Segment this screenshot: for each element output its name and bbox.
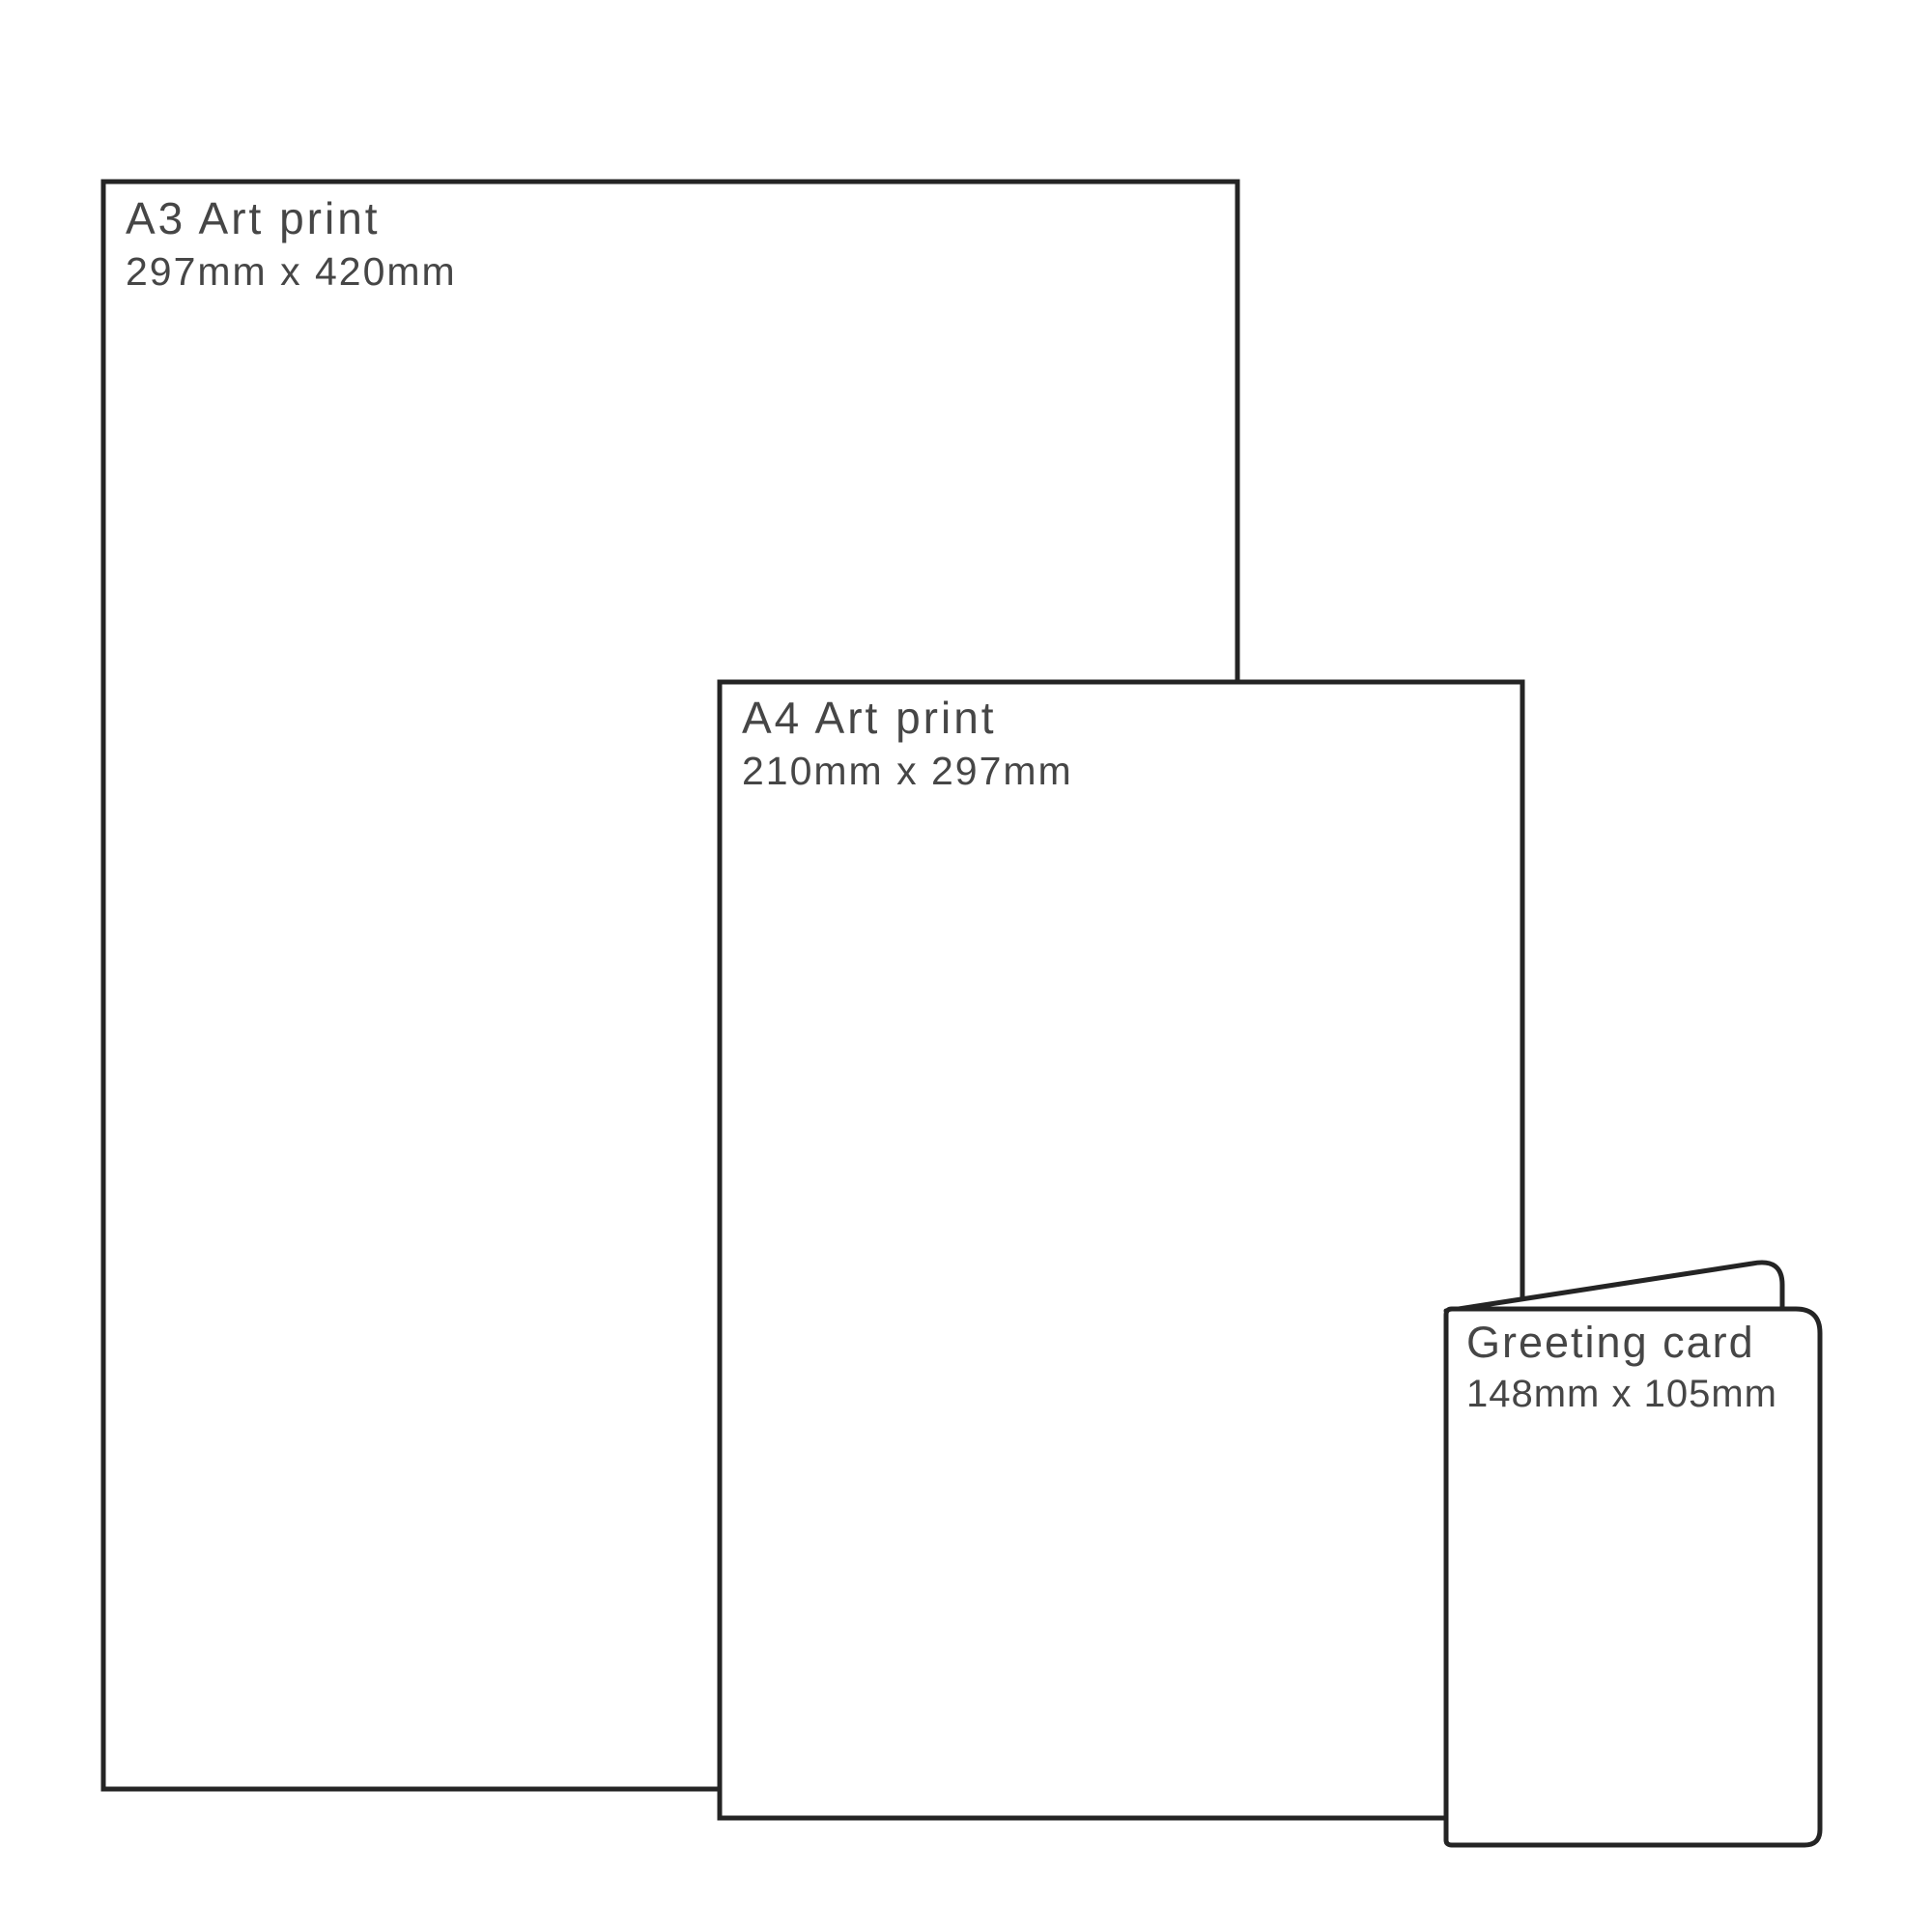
a4-print-outline — [720, 682, 1522, 1818]
paper-shapes-layer — [0, 0, 1932, 1932]
size-comparison-diagram: A3 Art print 297mm x 420mm A4 Art print … — [0, 0, 1932, 1932]
greeting-card-front-outline — [1446, 1309, 1820, 1845]
